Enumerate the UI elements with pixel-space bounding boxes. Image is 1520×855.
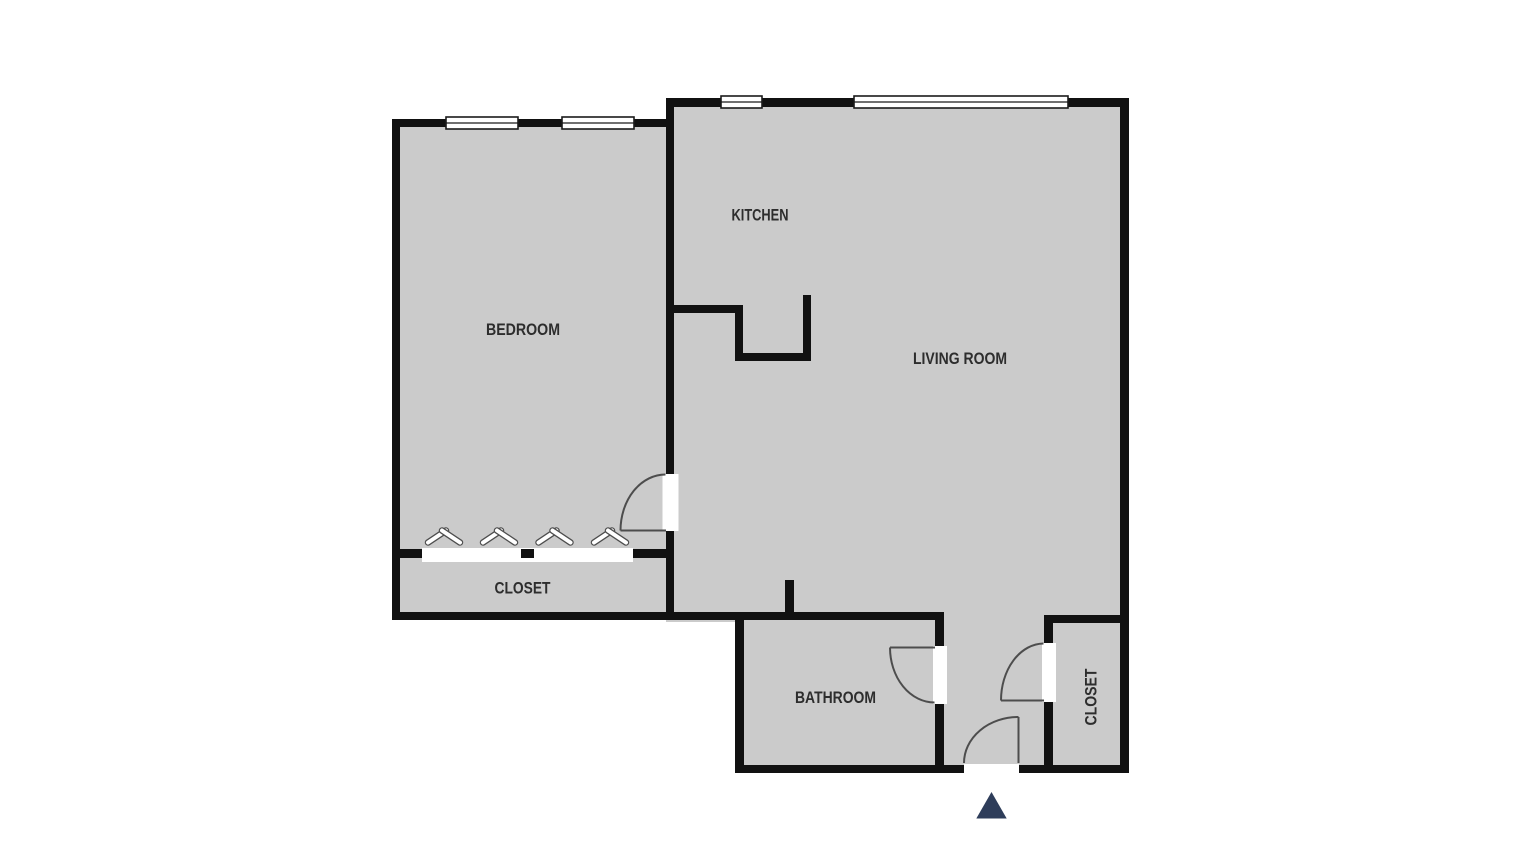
svg-text:BEDROOM: BEDROOM <box>486 320 560 339</box>
svg-text:CLOSET: CLOSET <box>495 579 551 598</box>
svg-text:KITCHEN: KITCHEN <box>732 206 789 225</box>
svg-text:CLOSET: CLOSET <box>1082 668 1101 726</box>
svg-text:LIVING ROOM: LIVING ROOM <box>913 349 1007 368</box>
svg-text:BATHROOM: BATHROOM <box>795 688 876 707</box>
